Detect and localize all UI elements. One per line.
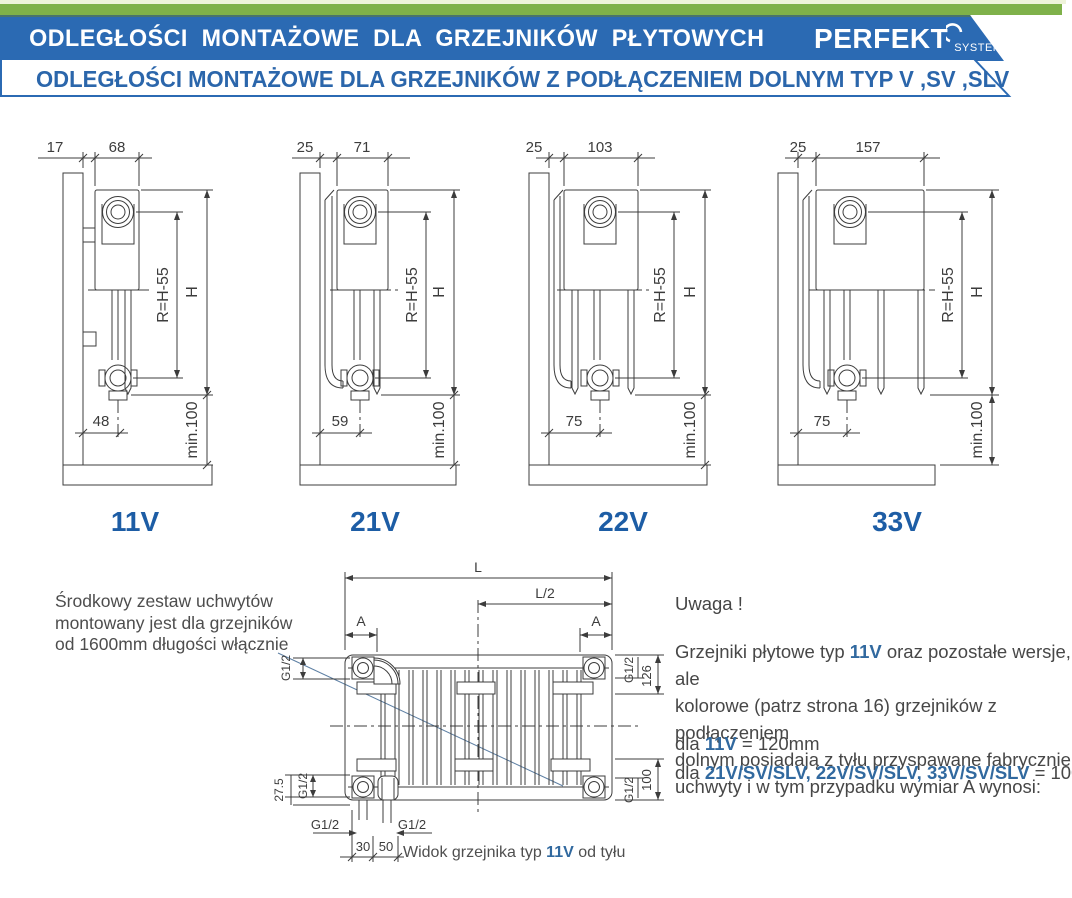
- r-dimension-22v: R=H-55: [615, 212, 680, 378]
- type-label-21v: 21V: [325, 506, 425, 538]
- svg-text:68: 68: [109, 139, 126, 156]
- svg-text:G1/2: G1/2: [279, 655, 293, 681]
- svg-text:27.5: 27.5: [272, 778, 286, 802]
- svg-text:A: A: [356, 613, 366, 629]
- top-dimension-11v: 17 68: [38, 139, 152, 186]
- svg-text:G1/2: G1/2: [296, 773, 310, 799]
- svg-text:25: 25: [526, 139, 543, 156]
- h-dimension-11v: H: [131, 190, 213, 395]
- svg-text:75: 75: [814, 413, 831, 430]
- type-label-22v: 22V: [573, 506, 673, 538]
- svg-text:G1/2: G1/2: [311, 817, 339, 832]
- top-dimension-33v: 25 157: [785, 139, 940, 186]
- r-dimension-11v: R=H-55: [133, 212, 183, 378]
- svg-text:A: A: [591, 613, 601, 629]
- note-line-11v: dla 11V = 120mm: [675, 733, 820, 755]
- main-title-banner: ODLEGŁOŚCI MONTAŻOWE DLA GRZEJNIKÓW PŁYT…: [0, 15, 1010, 61]
- rear-view-caption: Widok grzejnika typ 11V od tyłu: [403, 844, 625, 862]
- brand-subname: SYSTEM: [954, 42, 1002, 54]
- svg-text:min.100: min.100: [431, 401, 448, 458]
- svg-text:G1/2: G1/2: [398, 817, 426, 832]
- min100-dimension-22v: min.100: [682, 391, 711, 469]
- svg-text:G1/2: G1/2: [622, 777, 636, 803]
- bottom-dimension-22v: 75: [541, 400, 612, 438]
- r-dimension-21v: R=H-55: [375, 212, 431, 378]
- svg-text:G1/2: G1/2: [622, 657, 636, 683]
- rear-dims-left: G1/2 G1/2 27.5: [272, 655, 350, 805]
- svg-text:25: 25: [790, 139, 807, 156]
- svg-text:59: 59: [332, 413, 349, 430]
- wall-and-floor-22v: [529, 173, 707, 485]
- svg-text:R=H-55: R=H-55: [155, 267, 172, 323]
- radiator-11v: [83, 190, 150, 400]
- svg-text:H: H: [431, 286, 448, 298]
- rear-dim-L2: L/2: [478, 585, 612, 607]
- bottom-dimension-21v: 59: [312, 400, 372, 438]
- svg-text:R=H-55: R=H-55: [940, 267, 957, 323]
- page-subtitle: ODLEGŁOŚCI MONTAŻOWE DLA GRZEJNIKÓW Z PO…: [36, 62, 958, 96]
- brand-logo: PERFEKT SYSTEM: [814, 17, 1026, 61]
- brand-name: PERFEKT: [814, 23, 948, 54]
- svg-text:17: 17: [47, 139, 64, 156]
- diagram-21v: 25 71 R=H-55 H: [285, 135, 505, 535]
- svg-text:157: 157: [855, 139, 880, 156]
- svg-text:H: H: [969, 286, 986, 298]
- leader-line: [278, 653, 563, 786]
- svg-text:126: 126: [639, 665, 654, 687]
- min100-dimension-11v: min.100: [184, 391, 213, 469]
- radiator-33v: [803, 190, 935, 400]
- svg-text:50: 50: [379, 839, 393, 854]
- svg-text:30: 30: [356, 839, 370, 854]
- svg-text:25: 25: [297, 139, 314, 156]
- svg-text:R=H-55: R=H-55: [404, 267, 421, 323]
- page: ODLEGŁOŚCI MONTAŻOWE DLA GRZEJNIKÓW PŁYT…: [0, 0, 1072, 898]
- note-heading: Uwaga !: [675, 593, 743, 615]
- left-note: Środkowy zestaw uchwytów montowany jest …: [55, 591, 292, 656]
- note-line-other: dla 21V/SV/SLV, 22V/SV/SLV, 33V/SV/SLV =…: [675, 762, 1072, 784]
- svg-text:103: 103: [587, 139, 612, 156]
- diagram-22v: 25 103 R=H-55 H: [525, 135, 765, 535]
- page-title: ODLEGŁOŚCI MONTAŻOWE DLA GRZEJNIKÓW PŁYT…: [0, 25, 764, 53]
- top-green-strip: [0, 4, 1062, 15]
- wall-and-floor-33v: [778, 173, 935, 485]
- svg-text:100: 100: [639, 769, 654, 791]
- bottom-dimension-33v: 75: [790, 400, 860, 438]
- svg-text:min.100: min.100: [682, 401, 699, 458]
- min100-dimension-33v: min.100: [940, 395, 999, 465]
- rear-view-diagram: L L/2 A A G1/2 G1/2 27.5: [275, 560, 680, 880]
- svg-text:H: H: [184, 286, 201, 298]
- type-label-11v: 11V: [85, 506, 185, 538]
- svg-text:min.100: min.100: [184, 401, 201, 458]
- svg-text:75: 75: [566, 413, 583, 430]
- top-dimension-22v: 25 103: [526, 139, 655, 186]
- radiator-21v: [325, 190, 400, 400]
- svg-text:48: 48: [93, 413, 110, 430]
- type-label-33v: 33V: [847, 506, 947, 538]
- rear-dims-right: G1/2 126 G1/2 100: [615, 655, 664, 803]
- radiator-22v: [554, 190, 650, 400]
- top-dimension-21v: 25 71: [292, 139, 410, 186]
- diagram-33v: 25 157 R=H-55 H: [770, 135, 1028, 535]
- min100-dimension-21v: min.100: [431, 391, 460, 469]
- svg-text:min.100: min.100: [969, 401, 986, 458]
- diagram-11v: 17 68 R=H-55 H: [20, 135, 240, 535]
- svg-text:R=H-55: R=H-55: [652, 267, 669, 323]
- svg-text:L: L: [474, 559, 482, 575]
- svg-text:L/2: L/2: [535, 585, 555, 601]
- h-dimension-22v: H: [635, 190, 711, 395]
- svg-text:71: 71: [354, 139, 371, 156]
- svg-text:H: H: [682, 286, 699, 298]
